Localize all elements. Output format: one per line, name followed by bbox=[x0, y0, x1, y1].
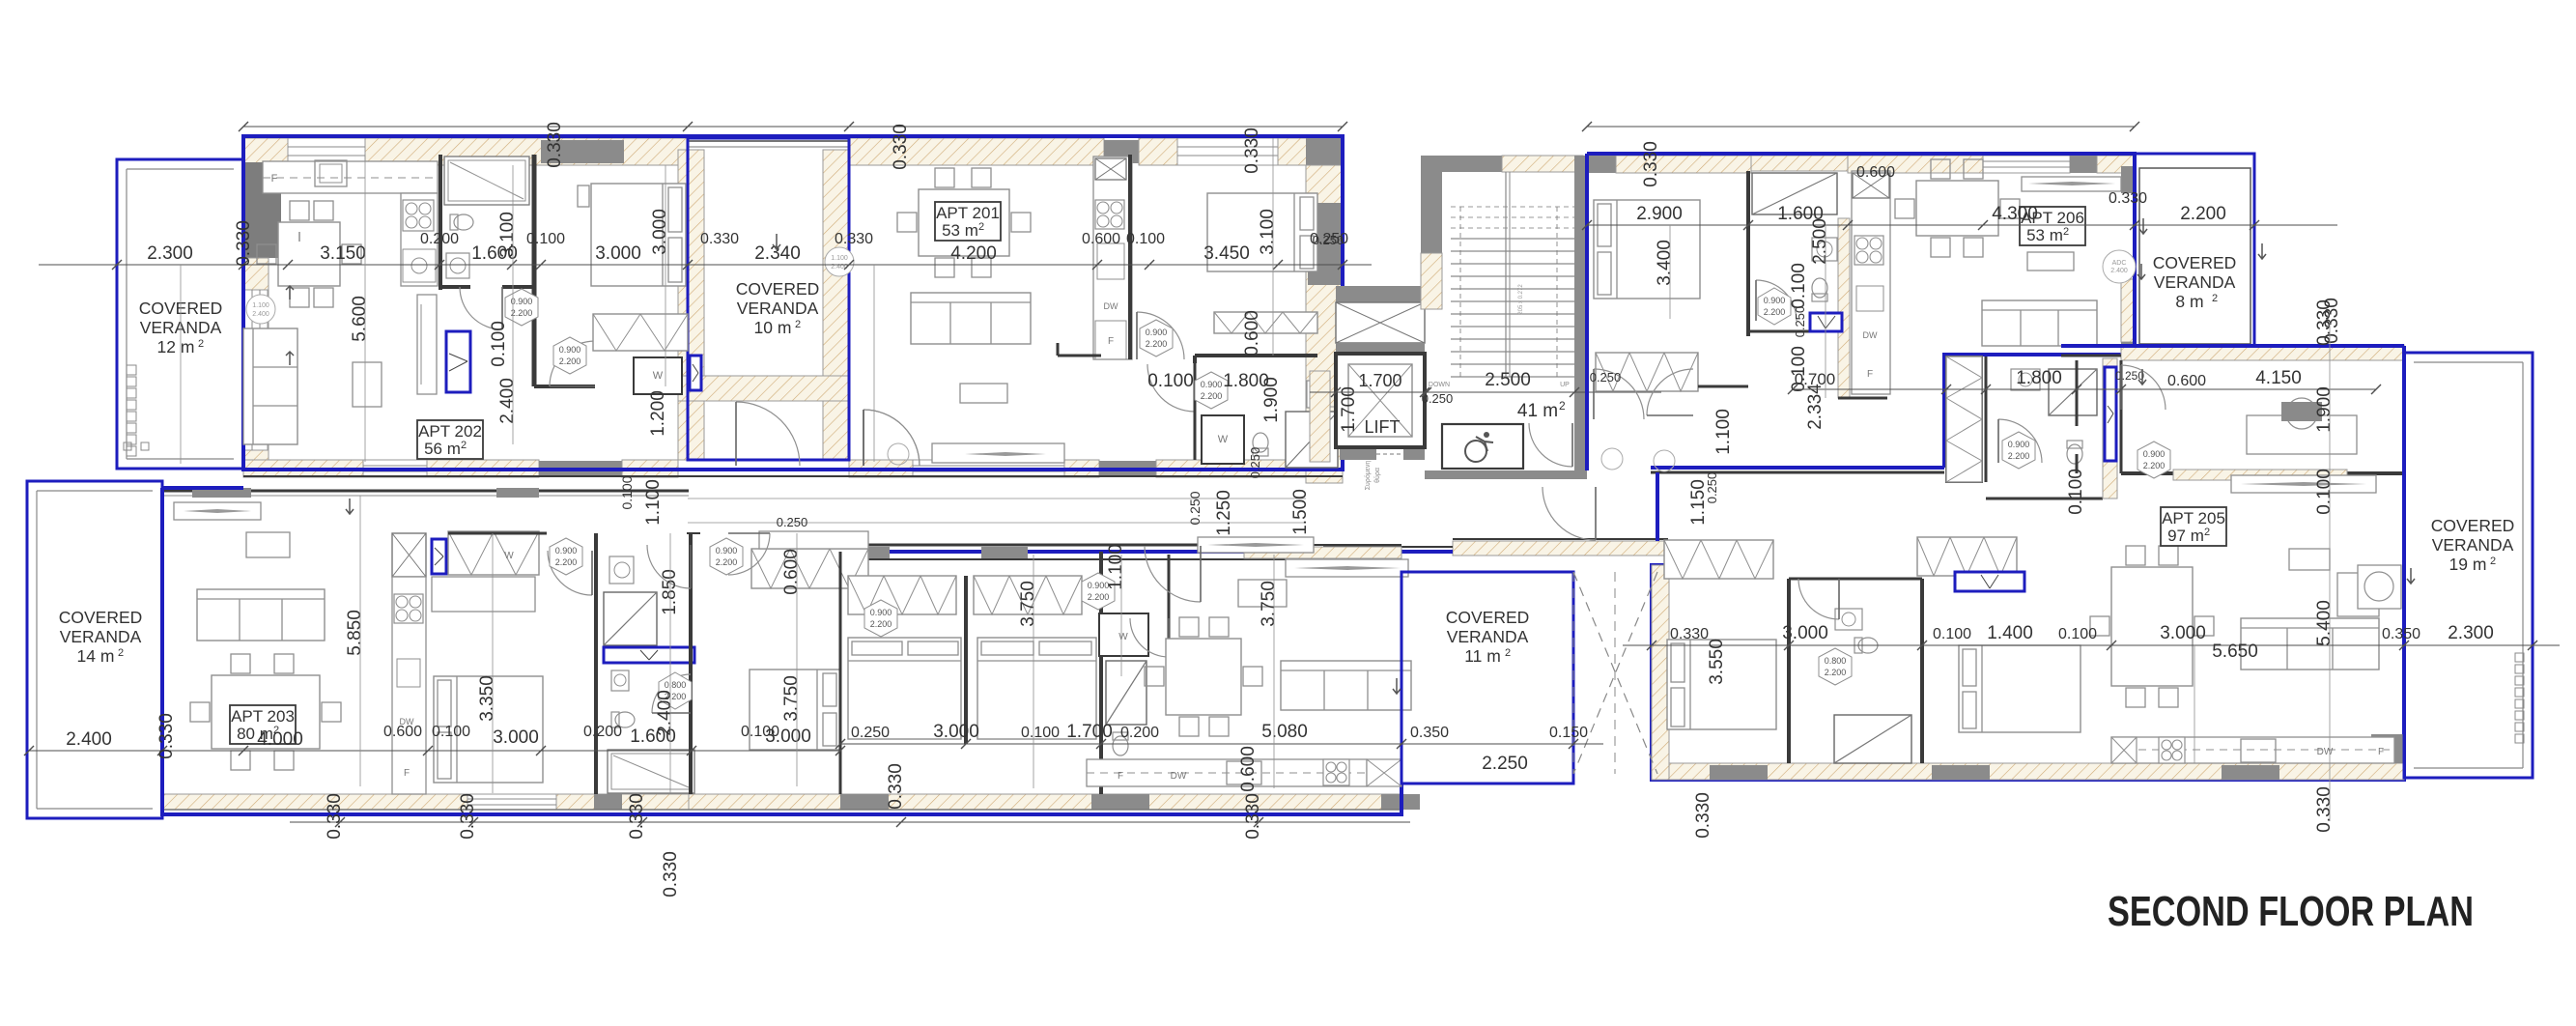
svg-text:2.340: 2.340 bbox=[754, 243, 801, 264]
svg-text:11 m: 11 m bbox=[1464, 646, 1501, 666]
svg-text:0.600: 0.600 bbox=[1856, 164, 1895, 181]
svg-text:8 m: 8 m bbox=[2175, 292, 2203, 311]
svg-text:COVERED: COVERED bbox=[736, 279, 820, 299]
svg-text:3.150: 3.150 bbox=[320, 243, 366, 264]
svg-text:1.250: 1.250 bbox=[1214, 490, 1234, 536]
svg-text:2.200: 2.200 bbox=[2180, 204, 2226, 224]
svg-text:VERANDA: VERANDA bbox=[1447, 627, 1529, 646]
svg-text:0.350: 0.350 bbox=[2382, 626, 2420, 642]
svg-text:0.330: 0.330 bbox=[2109, 190, 2147, 207]
svg-text:3.400: 3.400 bbox=[1655, 240, 1675, 286]
svg-text:1.700: 1.700 bbox=[1339, 386, 1359, 433]
svg-text:2.200: 2.200 bbox=[2143, 461, 2166, 470]
svg-text:10 m: 10 m bbox=[754, 318, 792, 337]
svg-text:2.200: 2.200 bbox=[1146, 339, 1168, 349]
svg-text:205 x 0.272: 205 x 0.272 bbox=[1518, 284, 1524, 315]
svg-text:F: F bbox=[1867, 369, 1873, 380]
svg-text:4.200: 4.200 bbox=[950, 243, 997, 264]
svg-text:0.330: 0.330 bbox=[2314, 786, 2335, 833]
svg-text:DW: DW bbox=[1863, 330, 1878, 340]
svg-text:3.550: 3.550 bbox=[1707, 639, 1727, 685]
svg-text:0.900: 0.900 bbox=[1764, 296, 1786, 305]
svg-text:19 m: 19 m bbox=[2449, 555, 2487, 574]
svg-text:DW: DW bbox=[1104, 301, 1118, 311]
svg-text:0.250: 0.250 bbox=[1590, 370, 1622, 385]
svg-text:0.800: 0.800 bbox=[665, 680, 687, 690]
svg-text:0.100: 0.100 bbox=[2314, 469, 2335, 515]
svg-text:APT 203: APT 203 bbox=[231, 707, 295, 726]
svg-text:F: F bbox=[2378, 747, 2384, 757]
svg-text:2: 2 bbox=[1505, 647, 1511, 659]
svg-text:VERANDA: VERANDA bbox=[737, 299, 819, 318]
svg-text:3.000: 3.000 bbox=[650, 209, 670, 255]
svg-text:COVERED: COVERED bbox=[2431, 516, 2515, 535]
svg-text:2.200: 2.200 bbox=[555, 557, 578, 567]
svg-text:0.330: 0.330 bbox=[886, 763, 906, 810]
svg-text:2: 2 bbox=[461, 440, 467, 451]
svg-text:2: 2 bbox=[2490, 556, 2496, 567]
svg-text:5.080: 5.080 bbox=[1261, 722, 1308, 742]
svg-text:0.700: 0.700 bbox=[1795, 370, 1836, 388]
svg-text:VERANDA: VERANDA bbox=[2432, 535, 2514, 555]
svg-text:UP: UP bbox=[1560, 382, 1570, 388]
svg-text:3.750: 3.750 bbox=[781, 675, 802, 722]
svg-text:5.850: 5.850 bbox=[345, 610, 365, 656]
svg-text:41 m: 41 m bbox=[1517, 401, 1558, 421]
svg-text:1.850: 1.850 bbox=[660, 569, 680, 615]
svg-text:1.900: 1.900 bbox=[2314, 386, 2335, 433]
svg-text:0.100: 0.100 bbox=[2066, 469, 2086, 515]
svg-text:1.700: 1.700 bbox=[1358, 371, 1401, 390]
svg-text:3.000: 3.000 bbox=[1782, 623, 1828, 643]
svg-text:2.200: 2.200 bbox=[1088, 592, 1110, 602]
svg-text:4.150: 4.150 bbox=[2255, 368, 2302, 388]
svg-text:2.200: 2.200 bbox=[2008, 451, 2030, 461]
svg-text:0.800: 0.800 bbox=[1825, 656, 1847, 666]
svg-text:0.330: 0.330 bbox=[234, 220, 254, 267]
svg-text:0.100: 0.100 bbox=[619, 475, 635, 509]
svg-text:0.100: 0.100 bbox=[526, 231, 565, 247]
svg-text:2.500: 2.500 bbox=[1485, 370, 1531, 390]
svg-text:LIFT: LIFT bbox=[1364, 417, 1400, 437]
svg-text:0.330: 0.330 bbox=[156, 713, 177, 759]
svg-text:2.200: 2.200 bbox=[1201, 391, 1223, 401]
svg-text:1.700: 1.700 bbox=[1066, 722, 1113, 742]
svg-text:3.000: 3.000 bbox=[595, 243, 641, 264]
svg-text:53 m: 53 m bbox=[942, 221, 978, 240]
svg-text:W: W bbox=[1118, 632, 1128, 642]
svg-text:0.200: 0.200 bbox=[583, 724, 622, 740]
svg-text:0.330: 0.330 bbox=[1641, 141, 1661, 187]
svg-text:1.900: 1.900 bbox=[1261, 377, 1282, 423]
svg-text:F: F bbox=[1108, 336, 1114, 347]
svg-text:4.300: 4.300 bbox=[1992, 204, 2038, 224]
svg-text:0.350: 0.350 bbox=[1410, 725, 1449, 741]
svg-text:5.400: 5.400 bbox=[2314, 600, 2335, 646]
svg-text:0.200: 0.200 bbox=[1120, 725, 1159, 741]
svg-text:2.400: 2.400 bbox=[66, 729, 112, 750]
svg-text:0.250: 0.250 bbox=[1793, 306, 1807, 338]
svg-text:2: 2 bbox=[2212, 293, 2218, 304]
svg-text:0.330: 0.330 bbox=[700, 231, 739, 247]
svg-text:0.900: 0.900 bbox=[559, 345, 581, 355]
svg-text:12 m: 12 m bbox=[157, 337, 195, 356]
svg-text:2.300: 2.300 bbox=[147, 243, 193, 264]
svg-text:5.600: 5.600 bbox=[350, 296, 370, 342]
svg-text:0.250: 0.250 bbox=[851, 725, 890, 741]
svg-text:1.100: 1.100 bbox=[831, 255, 848, 262]
svg-text:0.600: 0.600 bbox=[2167, 373, 2206, 389]
svg-text:0.900: 0.900 bbox=[511, 297, 533, 306]
svg-text:0.330: 0.330 bbox=[1243, 793, 1263, 840]
svg-text:W: W bbox=[1218, 434, 1229, 445]
svg-text:14 m: 14 m bbox=[77, 646, 115, 666]
svg-text:3.750: 3.750 bbox=[1018, 581, 1038, 627]
svg-text:3.000: 3.000 bbox=[765, 727, 811, 747]
svg-text:2.200: 2.200 bbox=[511, 308, 533, 318]
svg-text:VERANDA: VERANDA bbox=[2154, 272, 2236, 292]
svg-text:3.450: 3.450 bbox=[1203, 243, 1250, 264]
svg-text:0.250: 0.250 bbox=[777, 515, 808, 529]
svg-text:0.900: 0.900 bbox=[1146, 328, 1168, 337]
svg-text:0.250: 0.250 bbox=[1187, 491, 1203, 525]
svg-text:0.330: 0.330 bbox=[325, 793, 345, 840]
svg-text:0.330: 0.330 bbox=[835, 231, 873, 247]
svg-text:F: F bbox=[404, 768, 410, 779]
svg-text:0.900: 0.900 bbox=[1201, 380, 1223, 389]
svg-text:W: W bbox=[504, 551, 514, 561]
svg-text:W: W bbox=[653, 370, 664, 382]
svg-text:0.600: 0.600 bbox=[383, 724, 422, 740]
svg-text:2.200: 2.200 bbox=[1825, 668, 1847, 677]
svg-text:2: 2 bbox=[2204, 527, 2210, 538]
svg-text:2: 2 bbox=[1559, 399, 1566, 413]
svg-text:0.330: 0.330 bbox=[1670, 626, 1709, 642]
svg-text:COVERED: COVERED bbox=[59, 608, 143, 627]
svg-text:0.330: 0.330 bbox=[661, 851, 681, 898]
svg-text:1.100: 1.100 bbox=[252, 302, 269, 309]
svg-text:2: 2 bbox=[198, 338, 204, 350]
svg-text:2.400: 2.400 bbox=[2110, 268, 2128, 274]
svg-text:0.100: 0.100 bbox=[432, 724, 470, 740]
svg-text:2.200: 2.200 bbox=[716, 557, 738, 567]
svg-text:0.100: 0.100 bbox=[1789, 263, 1809, 309]
svg-text:1.100: 1.100 bbox=[1713, 409, 1734, 455]
svg-text:0.600: 0.600 bbox=[1238, 746, 1259, 792]
svg-text:2.400: 2.400 bbox=[497, 378, 518, 424]
svg-text:2.250: 2.250 bbox=[1482, 754, 1528, 774]
svg-text:2.200: 2.200 bbox=[870, 619, 892, 629]
svg-text:0.600: 0.600 bbox=[1082, 231, 1120, 247]
svg-text:3.100: 3.100 bbox=[1258, 209, 1278, 255]
svg-text:0.200: 0.200 bbox=[420, 231, 459, 247]
svg-text:97 m: 97 m bbox=[2167, 527, 2204, 545]
svg-text:53 m: 53 m bbox=[2026, 226, 2063, 244]
svg-text:0.330: 0.330 bbox=[891, 124, 911, 170]
svg-text:0.100: 0.100 bbox=[1147, 371, 1194, 391]
svg-text:Συρόμενη: Συρόμενη bbox=[1364, 461, 1372, 491]
svg-text:0.330: 0.330 bbox=[1693, 792, 1713, 839]
svg-text:2.300: 2.300 bbox=[2448, 623, 2494, 643]
svg-text:0.100: 0.100 bbox=[2058, 626, 2097, 642]
svg-text:3.000: 3.000 bbox=[933, 722, 979, 742]
svg-text:2.400: 2.400 bbox=[252, 311, 269, 318]
svg-text:θύρα: θύρα bbox=[1373, 468, 1381, 483]
svg-text:1.500: 1.500 bbox=[1290, 489, 1311, 535]
svg-text:0.150: 0.150 bbox=[1549, 725, 1588, 741]
svg-text:0.900: 0.900 bbox=[870, 608, 892, 617]
svg-text:3.100: 3.100 bbox=[497, 212, 518, 258]
svg-text:1.100: 1.100 bbox=[1106, 544, 1126, 590]
svg-text:0.900: 0.900 bbox=[2008, 440, 2030, 449]
svg-text:2: 2 bbox=[978, 221, 984, 233]
svg-text:0.100: 0.100 bbox=[489, 321, 509, 367]
svg-text:0.900: 0.900 bbox=[716, 546, 738, 556]
svg-text:0.900: 0.900 bbox=[555, 546, 578, 556]
svg-text:DW: DW bbox=[2317, 747, 2334, 757]
svg-text:APT 205: APT 205 bbox=[2162, 509, 2225, 527]
svg-text:DOWN: DOWN bbox=[1429, 382, 1450, 388]
svg-text:1.200: 1.200 bbox=[648, 390, 668, 437]
svg-text:0.250: 0.250 bbox=[2115, 369, 2144, 383]
svg-text:3.750: 3.750 bbox=[1259, 581, 1279, 627]
svg-text:2.200: 2.200 bbox=[1764, 307, 1786, 317]
svg-text:2: 2 bbox=[2063, 226, 2069, 238]
svg-text:1.800: 1.800 bbox=[2016, 368, 2062, 388]
svg-text:DW: DW bbox=[1171, 771, 1187, 782]
svg-text:APT 201: APT 201 bbox=[936, 204, 1000, 222]
svg-text:2: 2 bbox=[795, 319, 801, 330]
svg-text:COVERED: COVERED bbox=[1446, 608, 1530, 627]
svg-text:0.330: 0.330 bbox=[2314, 299, 2335, 346]
svg-text:F: F bbox=[1118, 771, 1123, 782]
svg-text:0.600: 0.600 bbox=[1242, 310, 1262, 356]
svg-text:SECOND FLOOR PLAN: SECOND FLOOR PLAN bbox=[2108, 888, 2474, 935]
svg-text:VERANDA: VERANDA bbox=[60, 627, 142, 646]
svg-text:3.000: 3.000 bbox=[493, 727, 539, 748]
svg-text:2.200: 2.200 bbox=[559, 356, 581, 366]
svg-text:0.100: 0.100 bbox=[1126, 231, 1165, 247]
svg-text:2.334: 2.334 bbox=[1805, 384, 1826, 430]
svg-text:0.250: 0.250 bbox=[1310, 231, 1348, 247]
svg-text:4.000: 4.000 bbox=[257, 729, 303, 750]
svg-text:COVERED: COVERED bbox=[2153, 253, 2237, 272]
svg-text:0.250: 0.250 bbox=[1705, 472, 1719, 504]
svg-text:0.330: 0.330 bbox=[545, 122, 565, 168]
svg-text:APT 202: APT 202 bbox=[418, 422, 482, 441]
svg-text:0.330: 0.330 bbox=[627, 793, 647, 840]
svg-text:0.100: 0.100 bbox=[1933, 626, 1971, 642]
svg-text:2.900: 2.900 bbox=[1636, 204, 1683, 224]
svg-text:2: 2 bbox=[118, 647, 124, 659]
svg-text:0.600: 0.600 bbox=[781, 549, 802, 595]
svg-text:0.900: 0.900 bbox=[2143, 449, 2166, 459]
svg-text:0.330: 0.330 bbox=[1242, 128, 1262, 174]
svg-text:F: F bbox=[271, 173, 278, 185]
svg-text:0.100: 0.100 bbox=[1021, 725, 1060, 741]
svg-text:2.400: 2.400 bbox=[655, 690, 675, 736]
svg-text:0.330: 0.330 bbox=[458, 793, 478, 840]
svg-text:1.100: 1.100 bbox=[643, 479, 664, 526]
svg-text:56 m: 56 m bbox=[424, 440, 461, 458]
svg-text:1.400: 1.400 bbox=[1987, 623, 2033, 643]
svg-text:ADC: ADC bbox=[2112, 260, 2127, 267]
svg-text:2.500: 2.500 bbox=[1810, 218, 1830, 265]
svg-text:5.650: 5.650 bbox=[2212, 641, 2258, 662]
svg-text:3.000: 3.000 bbox=[2160, 623, 2206, 643]
svg-text:0.250: 0.250 bbox=[1248, 447, 1262, 479]
svg-text:3.350: 3.350 bbox=[477, 675, 497, 722]
